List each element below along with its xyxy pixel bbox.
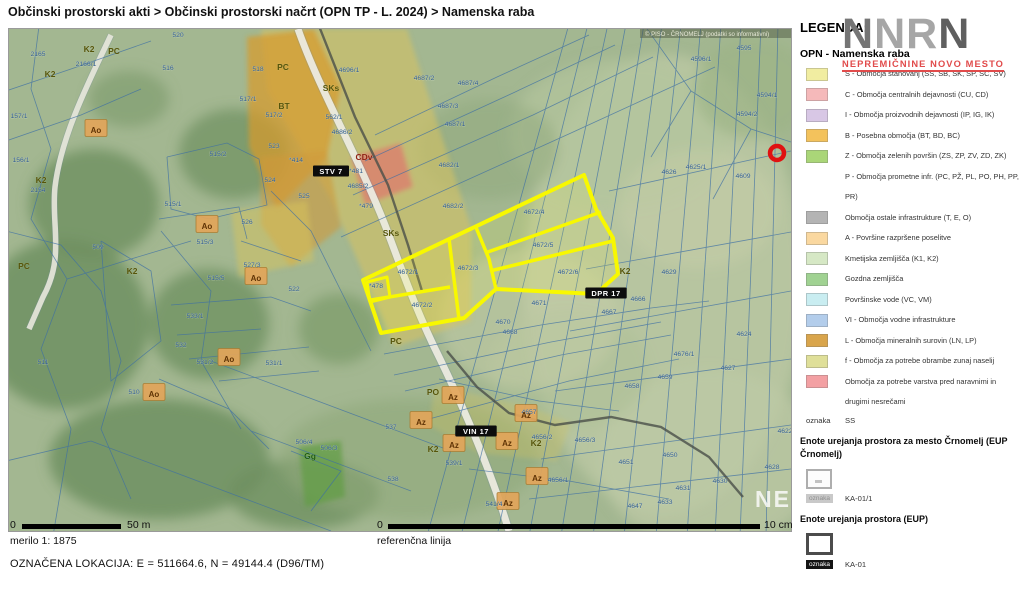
zone-label: SKs [383,228,400,238]
oznaka-chip-light: oznaka [806,494,833,503]
parcel-number: 4594/1 [757,92,778,99]
parcel-number: 4594/2 [737,111,758,118]
legend-swatch [806,355,828,368]
legend-item: P - Območja prometne infr. (PC, PŽ, PL, … [800,167,1028,208]
legend-swatch [806,273,828,286]
parcel-number: 541/4 [485,501,502,508]
logo-subtitle: NEPREMIČNINE NOVO MESTO [842,59,1004,72]
parcel-number: 4687/2 [414,75,435,82]
breadcrumb[interactable]: Občinski prostorski akti > Občinski pros… [8,5,534,19]
parcel-number: 4686/2 [332,129,353,136]
parcel-number: 531/1 [265,360,282,367]
zone-label: K2 [36,175,47,185]
parcel-number: 520 [172,32,184,39]
legend-item: C - Območja centralnih dejavnosti (CU, C… [800,85,1028,106]
parcel-number: 4666 [630,296,645,303]
oznaka-label: oznaka [806,416,845,425]
parcel-number: 4687/1 [445,121,466,128]
zone-label: Ao [91,126,102,135]
legend-item: L - Območja mineralnih surovin (LN, LP) [800,331,1028,352]
map-canvas[interactable]: 52051651821652166/12154157/1156/1517/151… [9,29,791,531]
parcel-number: 4629 [661,269,676,276]
parcel-number: 4672/4 [524,209,545,216]
eup-swatch [806,533,833,555]
parcel-number: 4622 [777,428,791,435]
zone-label: PC [18,261,30,271]
parcel-number: 4656/3 [575,437,596,444]
parcel-number: 515/3 [196,239,213,246]
eup-row: oznaka KA-01 [806,560,1028,569]
eup-crnomelj-title: Enote urejanja prostora za mesto Črnomel… [800,435,1028,462]
parcel-number: 4656/1 [548,477,569,484]
parcel-number: 518 [252,66,264,73]
parcel-number: *478 [369,283,383,290]
parcel-number: 516 [162,65,174,72]
parcel-number: 515/5 [207,275,224,282]
parcel-number: 4630 [712,478,727,485]
parcel-number: *479 [359,203,373,210]
parcel-number: 533/1 [186,313,203,320]
parcel-number: 4685/2 [348,183,369,190]
refline-bar [388,524,760,529]
oznaka-chip-dark: oznaka [806,560,833,569]
parcel-number: 523 [268,143,280,150]
eup-crnomelj-swatch [806,469,832,489]
legend-item: Območja ostale infrastrukture (T, E, O) [800,208,1028,229]
parcel-number: 538 [387,476,399,483]
zone-label: Ao [251,274,262,283]
parcel-number: 2154 [30,187,45,194]
legend-item-label: VI - Območja vodne infrastrukture [845,310,1021,331]
zone-label: Az [449,441,459,450]
parcel-number: 4682/1 [439,162,460,169]
parcel-number: 4651 [618,459,633,466]
zone-label: CDv [355,152,372,162]
parcel-number: 4609 [735,173,750,180]
legend-item: A - Površine razpršene poselitve [800,228,1028,249]
oznaka-value: SS [845,416,855,425]
legend-item: Kmetijska zemljišča (K1, K2) [800,249,1028,270]
zone-label: K2 [620,266,631,276]
legend-item-label: Z - Območja zelenih površin (ZS, ZP, ZV,… [845,146,1021,167]
legend-section-opn: OPN - Namenska raba [800,48,1028,60]
refline-zero: 0 [377,519,383,531]
legend-item-label: I - Območja proizvodnih dejavnosti (IP, … [845,105,1021,126]
parcel-number: 531/2 [196,359,213,366]
legend-item-label: A - Površine razpršene poselitve [845,228,1021,249]
nep-watermark: NEP [755,486,791,512]
zone-label: K2 [531,438,542,448]
zone-label: PC [390,336,402,346]
scale-ratio: merilo 1: 1875 [10,535,77,547]
refline-caption: referenčna linija [377,535,451,547]
zone-label: Az [521,411,531,420]
legend-swatch [806,211,828,224]
parcel-number: 4658 [624,383,639,390]
legend-item-label: L - Območja mineralnih surovin (LN, LP) [845,331,1021,352]
legend-item-label: P - Območja prometne infr. (PC, PŽ, PL, … [845,167,1021,208]
zone-label: Az [502,439,512,448]
eup-box-label: STV 7 [319,167,342,176]
legend-item-label: C - Območja centralnih dejavnosti (CU, C… [845,85,1021,106]
legend-swatch [806,314,828,327]
legend-swatch [806,68,828,81]
parcel-number: 4672/2 [412,302,433,309]
parcel-number: 4633 [657,499,672,506]
nnrn-logo: NNRN NEPREMIČNINE NOVO MESTO [842,14,1028,72]
legend-item-label: Kmetijska zemljišča (K1, K2) [845,249,1021,270]
eup-crnomelj-code: KA-01/1 [845,494,872,503]
eup-box-label: VIN 17 [463,427,489,436]
zone-label: Az [416,418,426,427]
parcel-number: 4596/1 [691,56,712,63]
parcel-number: 4647 [627,503,642,510]
legend-item: f - Območja za potrebe obrambe zunaj nas… [800,351,1028,372]
parcel-number: 532 [175,342,187,349]
zone-label: Gg [304,451,316,461]
parcel-number: 4631 [675,485,690,492]
parcel-number: 517/2 [265,112,282,119]
parcel-number: 4676/1 [674,351,695,358]
legend-item: Z - Območja zelenih površin (ZS, ZP, ZV,… [800,146,1028,167]
parcel-number: 4625/1 [686,164,707,171]
page: Občinski prostorski akti > Občinski pros… [0,0,1030,601]
eup-title: Enote urejanja prostora (EUP) [800,513,1028,527]
parcel-number: *414 [289,157,303,164]
zone-label: Az [532,474,542,483]
parcel-number: 4672/1 [398,269,419,276]
parcel-number: 4659 [657,374,672,381]
scalebar-bar [22,524,121,529]
parcel-number: 525 [298,193,310,200]
legend-item-label: Območja za potrebe varstva pred naravnim… [845,372,1021,413]
legend-panel: LEGENDA: NNRN NEPREMIČNINE NOVO MESTO OP… [800,20,1028,569]
legend-swatch [806,88,828,101]
parcel-number: 515/2 [209,151,226,158]
legend-item-label: B - Posebna območja (BT, BD, BC) [845,126,1021,147]
map-viewport[interactable]: 52051651821652166/12154157/1156/1517/151… [8,28,792,532]
parcel-number: 562/1 [325,114,342,121]
legend-item: I - Območja proizvodnih dejavnosti (IP, … [800,105,1028,126]
zone-label: BT [278,101,290,111]
parcel-number: 526 [241,219,253,226]
parcel-number: 4682/2 [443,203,464,210]
parcel-number: 511 [38,359,49,366]
zone-label: Ao [224,355,235,364]
zone-label: Az [503,499,513,508]
parcel-number: 4670 [495,319,510,326]
zone-label: PC [277,62,289,72]
parcel-number: 4595 [736,45,751,52]
legend-item: B - Posebna območja (BT, BD, BC) [800,126,1028,147]
legend-item-label: f - Območja za potrebe obrambe zunaj nas… [845,351,1021,372]
zone-label: K2 [45,69,56,79]
zone-label: K2 [127,266,138,276]
legend-item: VI - Območja vodne infrastrukture [800,310,1028,331]
parcel-number: 4624 [736,331,751,338]
legend-swatch [806,293,828,306]
zone-label: Az [448,393,458,402]
zone-label: Ao [149,390,160,399]
parcel-number: 4672/3 [458,265,479,272]
parcel-number: 2165 [30,51,45,58]
parcel-number: 4672/5 [533,242,554,249]
legend-item-label: Površinske vode (VC, VM) [845,290,1021,311]
parcel-number: 4671 [531,300,546,307]
marked-location-coordinates: OZNAČENA LOKACIJA: E = 511664.6, N = 491… [10,558,324,570]
parcel-number: 510 [128,389,140,396]
legend-item-label: Območja ostale infrastrukture (T, E, O) [845,208,1021,229]
parcel-number: 157/1 [10,113,27,120]
legend-item-label: Gozdna zemljišča [845,269,1021,290]
parcel-number: 515/1 [164,201,181,208]
zone-label: K2 [428,444,439,454]
legend-swatch [806,129,828,142]
legend-swatch [806,252,828,265]
zone-label: PC [108,46,120,56]
zone-label: K2 [84,44,95,54]
legend-swatch [806,375,828,388]
eup-crnomelj-row: oznaka KA-01/1 [806,494,1028,503]
parcel-number: 4667 [601,309,616,316]
legend-swatch [806,109,828,122]
legend-swatch [806,334,828,347]
parcel-number: 4696/1 [339,67,360,74]
scalebar-zero: 0 [10,519,16,531]
scalebar-max: 50 m [127,519,150,531]
parcel-number: 4650 [662,452,677,459]
parcel-number: 506/3 [320,445,337,452]
parcel-number: 539/1 [445,460,462,467]
legend-swatch [806,150,828,163]
parcel-number: 506/4 [295,439,312,446]
eup-code: KA-01 [845,560,866,569]
parcel-number: 537 [385,424,397,431]
zone-label: Ao [202,222,213,231]
parcel-number: 4626 [661,169,676,176]
legend-item: Površinske vode (VC, VM) [800,290,1028,311]
parcel-number: 2166/1 [76,61,97,68]
parcel-number: 4627 [720,365,735,372]
piso-watermark: © PISO - ČRNOMELJ (podatki so informativ… [645,31,769,38]
refline-max: 10 cm [764,519,793,531]
zone-label: PO [427,387,440,397]
parcel-number: 517/1 [239,96,256,103]
legend-item: Območja za potrebe varstva pred naravnim… [800,372,1028,413]
legend-swatch [806,232,828,245]
parcel-number: 4628 [764,464,779,471]
parcel-number: 4672/6 [558,269,579,276]
parcel-number: *481 [349,168,363,175]
parcel-number: 509 [92,244,104,251]
oznaka-ss-row: oznaka SS [800,416,1028,425]
legend-item: Gozdna zemljišča [800,269,1028,290]
parcel-number: 156/1 [12,157,29,164]
legend-items: S - Območja stanovanj (SS, SB, SK, SP, S… [800,64,1028,413]
zone-label: SKs [323,83,340,93]
parcel-number: 4687/3 [438,103,459,110]
parcel-number: 4668 [502,329,517,336]
parcel-number: 522 [288,286,300,293]
parcel-number: 527/3 [243,262,260,269]
eup-box-label: DPR 17 [591,289,620,298]
parcel-number: 4687/4 [458,80,479,87]
parcel-number: 524 [264,177,276,184]
